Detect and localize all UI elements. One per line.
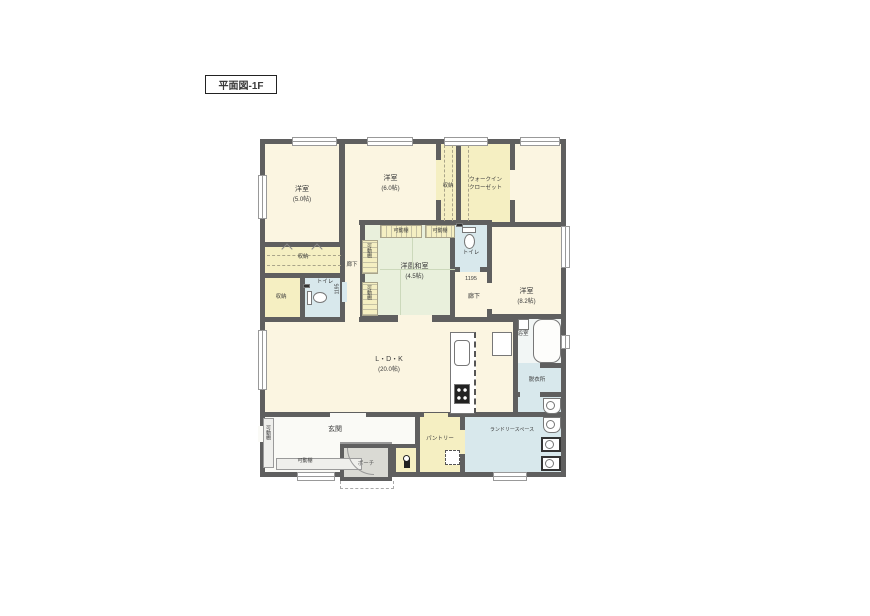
shelf-label: 可動棚 — [265, 425, 272, 440]
room-label: 洋室 — [295, 184, 309, 194]
room-label: パントリー — [426, 434, 454, 442]
washer-drum-icon — [545, 459, 554, 468]
door-opening — [460, 430, 465, 454]
room-label: 収納 — [297, 252, 308, 260]
room-label: 収納 — [442, 181, 453, 189]
window — [561, 335, 570, 349]
shelf-label: 可動棚 — [432, 227, 447, 234]
room-ldk: L・D・K (20.0帖) — [260, 317, 518, 417]
window — [258, 175, 267, 219]
basin-bowl-icon — [546, 401, 555, 410]
floor-plan-page: 平面図-1F 洋室 (5.0帖) 洋室 (6.0帖) ウォークイン クローゼット… — [0, 0, 870, 616]
shelf-label: 可動棚 — [366, 285, 373, 300]
window — [444, 137, 488, 146]
shelf-label: 可動棚 — [366, 243, 373, 258]
room-label: 玄関 — [328, 424, 342, 434]
window — [520, 137, 560, 146]
room-size: (5.0帖) — [293, 194, 311, 203]
tatami-line — [400, 269, 401, 315]
door-opening — [436, 160, 441, 200]
room-label: 洋室 — [520, 286, 534, 296]
shelf-label: 可動棚 — [393, 227, 408, 234]
toilet-icon — [313, 292, 327, 303]
room-label: トイレ — [317, 277, 334, 285]
dimension-label: 1195 — [465, 276, 477, 282]
window — [297, 472, 335, 481]
room-label: 廊下 — [346, 260, 357, 268]
window — [493, 472, 527, 481]
room-label: 洋室 — [384, 173, 398, 183]
door-opening — [345, 220, 359, 229]
door-opening — [342, 282, 347, 302]
door-opening — [460, 267, 480, 272]
stove-icon — [454, 384, 470, 404]
door-opening — [518, 363, 540, 368]
toilet-tank-icon — [307, 291, 312, 305]
porch-step — [340, 481, 394, 489]
room-walk-in-closet: ウォークイン クローゼット — [456, 139, 515, 227]
basin-bowl-icon — [546, 420, 555, 429]
room-label: クローゼット — [469, 183, 502, 191]
room-size: (20.0帖) — [378, 364, 400, 373]
door-opening — [520, 392, 540, 397]
room-yoshitsu5: 洋室 (5.0帖) — [260, 139, 344, 247]
room-size: (6.0帖) — [381, 183, 399, 192]
room-label: L・D・K — [375, 354, 403, 364]
floor-hatch — [445, 450, 460, 465]
room-yoshitsu6: 洋室 (6.0帖) — [340, 139, 441, 225]
window — [292, 137, 337, 146]
closet-rod-line — [468, 145, 469, 221]
door-opening — [424, 413, 448, 420]
dimension-label: 1195 — [334, 284, 340, 295]
plan-title: 平面図-1F — [205, 75, 277, 94]
room-label: ウォークイン — [469, 175, 502, 183]
room-label: 廊下 — [468, 291, 480, 300]
kitchen-sink-icon — [454, 340, 470, 366]
room-label: 収納 — [275, 292, 286, 300]
room-label: 脱衣所 — [529, 375, 546, 383]
door-opening — [487, 283, 492, 309]
closet-rod-line — [267, 265, 341, 266]
room-yoshitsu82: 洋室 (8.2帖) — [487, 222, 566, 319]
door-opening — [510, 170, 515, 200]
room-pantry — [415, 412, 465, 477]
door-opening — [398, 315, 432, 322]
shelf-label: 可動棚 — [297, 457, 312, 464]
wall-cabinet-icon — [456, 223, 463, 227]
washer-drum-icon — [545, 440, 554, 449]
room-yoshitsu82-upper — [510, 139, 566, 227]
window — [561, 226, 570, 268]
room-size: (8.2帖) — [517, 296, 535, 305]
refrigerator-space — [492, 332, 512, 356]
room-label: ランドリースペース — [490, 426, 534, 433]
room-label: トイレ — [463, 248, 480, 256]
door-opening — [345, 312, 359, 322]
toilet-icon — [464, 234, 475, 249]
door-opening — [330, 413, 366, 421]
wall-cabinet-icon — [303, 284, 310, 288]
faucet-icon — [403, 455, 410, 462]
window — [258, 330, 267, 390]
entry-step-line — [340, 442, 392, 444]
window — [367, 137, 413, 146]
toilet-tank-icon — [462, 227, 476, 233]
room-size: (4.5帖) — [405, 271, 423, 280]
tatami-line — [380, 269, 455, 270]
bathtub-icon — [533, 319, 561, 363]
room-label: ポーチ — [358, 459, 375, 467]
room-label: 浴室 — [517, 329, 528, 337]
